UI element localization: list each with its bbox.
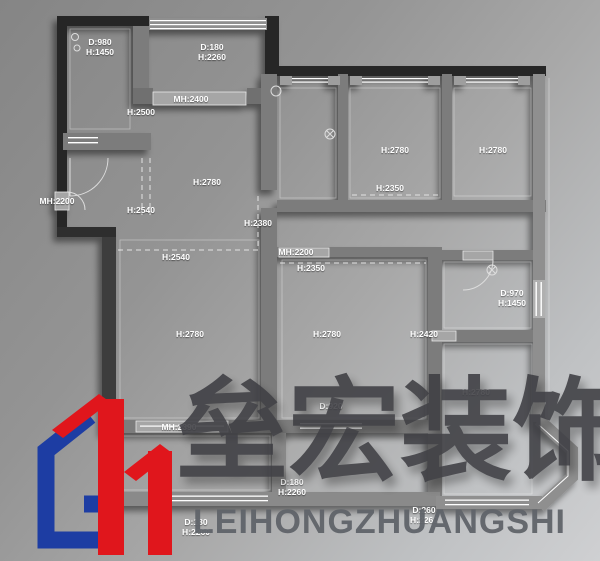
watermark-chinese: 垒宏装饰 (176, 376, 600, 488)
floorplan-canvas: D:980H:1450D:180H:2260MH:2400H:2500H:278… (0, 0, 600, 561)
watermark-latin: LEIHONGZHUANGSHI (193, 503, 566, 542)
logo-gh-icon (46, 394, 172, 555)
